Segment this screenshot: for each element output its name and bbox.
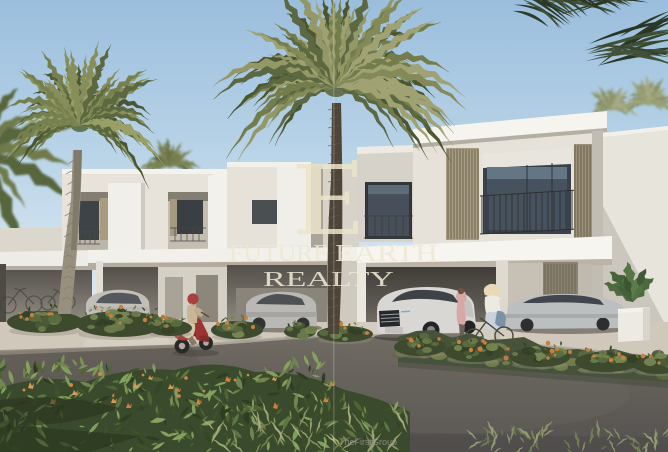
svg-text:FUTURE: FUTURE: [229, 241, 329, 267]
svg-text:REALTY: REALTY: [263, 267, 394, 291]
svg-text:EARTH: EARTH: [335, 241, 438, 267]
svg-text:TheFirstGroup: TheFirstGroup: [339, 437, 397, 447]
